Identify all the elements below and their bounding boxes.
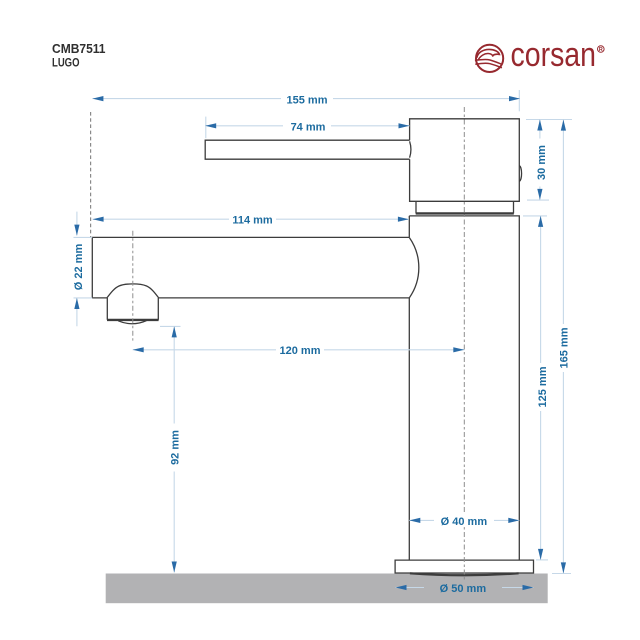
svg-text:corsan: corsan (511, 36, 597, 74)
svg-text:Ø 22 mm: Ø 22 mm (73, 244, 85, 291)
svg-text:CMB7511: CMB7511 (52, 41, 106, 56)
svg-text:Ø 50 mm: Ø 50 mm (440, 583, 487, 595)
svg-text:Ø 40 mm: Ø 40 mm (441, 516, 488, 528)
svg-text:30 mm: 30 mm (536, 145, 548, 180)
svg-text:R: R (599, 47, 603, 53)
svg-text:155 mm: 155 mm (287, 94, 328, 106)
svg-text:74 mm: 74 mm (291, 121, 326, 133)
svg-text:120 mm: 120 mm (280, 345, 321, 357)
svg-text:LUGO: LUGO (52, 55, 80, 69)
svg-text:165 mm: 165 mm (559, 327, 571, 368)
svg-text:114 mm: 114 mm (232, 215, 273, 227)
svg-text:92 mm: 92 mm (169, 430, 181, 465)
svg-text:125 mm: 125 mm (537, 366, 549, 407)
